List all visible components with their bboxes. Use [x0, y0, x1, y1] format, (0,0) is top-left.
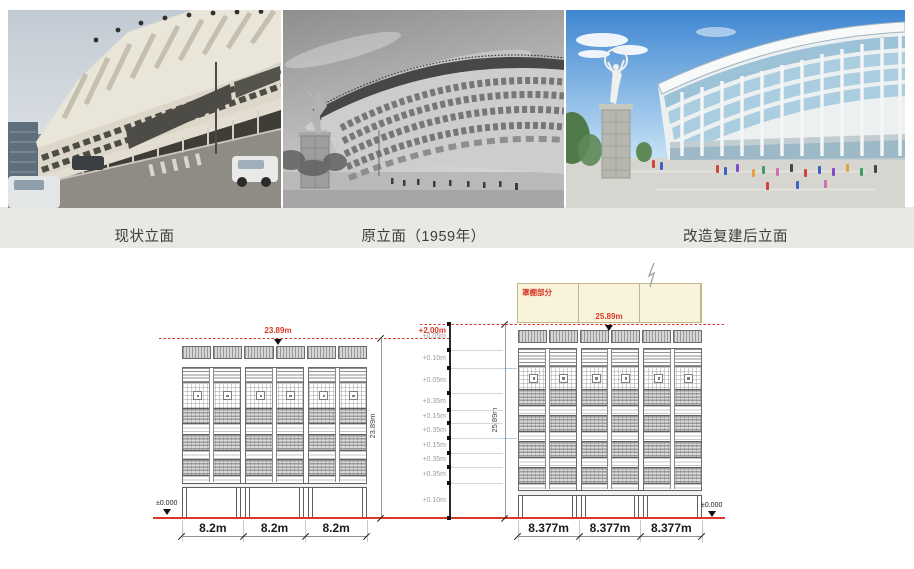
parapet-segment	[213, 346, 242, 359]
level-tick	[447, 322, 451, 326]
extension-line	[367, 520, 368, 542]
facade-bay	[182, 367, 241, 483]
canopy-label: 罩棚部分	[522, 287, 552, 298]
left-peak-triangle-icon	[274, 339, 282, 345]
parapet-segment	[611, 330, 640, 343]
bay-mullion	[209, 368, 214, 482]
level-tick-line	[451, 368, 503, 369]
rosette-ornament-icon	[193, 391, 202, 400]
level-tick-line	[451, 350, 503, 351]
right-peak-marker: 25.89m	[586, 306, 632, 331]
level-tick-line	[451, 467, 503, 468]
rosette-ornament-icon	[223, 391, 232, 400]
level-tick-line	[451, 410, 503, 411]
ground-column	[634, 496, 639, 517]
ground-column	[299, 488, 304, 517]
level-tick-line	[451, 423, 503, 424]
elevation-step-label: +0.15m	[400, 442, 446, 450]
level-tick-line	[451, 483, 503, 484]
elevation-step-label: +0.35m	[400, 427, 446, 435]
bay-mullion	[335, 368, 340, 482]
bay-width-label: 8.377m	[519, 521, 579, 535]
right-height-dim-line	[505, 324, 506, 518]
elevation-drawings: 罩棚部分 23.89m 25.89m +2.00m ±0.000 ±0.000 …	[0, 0, 914, 569]
bay-width-label: 8.377m	[580, 521, 640, 535]
facade-bay	[643, 348, 702, 490]
parapet-segment	[580, 330, 609, 343]
parapet-segment	[518, 330, 547, 343]
right-datum-label: ±0.000	[701, 502, 722, 509]
left-datum-label: ±0.000	[156, 500, 177, 507]
elevation-step-label: +0.15m	[400, 413, 446, 421]
rosette-ornament-icon	[349, 391, 358, 400]
ground-column	[581, 496, 586, 517]
parapet-segment	[244, 346, 273, 359]
elevation-step-label: +0.05m	[400, 333, 446, 341]
right-peak-label: 25.89m	[595, 312, 622, 321]
elevation-step-label: +0.35m	[400, 398, 446, 406]
level-tick	[447, 516, 451, 520]
rosette-ornament-icon	[559, 374, 568, 383]
ground-level-line	[153, 517, 725, 519]
dimension-line	[182, 536, 367, 537]
parapet-band	[518, 330, 702, 343]
ground-floor	[182, 488, 367, 517]
elevation-step-label: +0.10m	[400, 355, 446, 363]
facade-bay	[245, 367, 304, 483]
elevation-step-label: +0.35m	[400, 471, 446, 479]
elevation-step-label: +0.35m	[400, 456, 446, 464]
parapet-segment	[276, 346, 305, 359]
parapet-segment	[642, 330, 671, 343]
rosette-ornament-icon	[684, 374, 693, 383]
left-peak-marker: 23.89m	[255, 320, 301, 345]
right-peak-triangle-icon	[605, 325, 613, 331]
elevation-step-label: +0.10m	[400, 497, 446, 505]
bay-mullion	[607, 349, 612, 489]
bay-width-label: 8.377m	[641, 521, 701, 535]
right-roof-level-line	[420, 324, 725, 325]
level-tick-line	[451, 438, 503, 439]
ground-column	[236, 488, 241, 517]
parapet-segment	[549, 330, 578, 343]
ground-column	[362, 488, 367, 517]
elevation-step-label: +0.05m	[400, 377, 446, 385]
rosette-ornament-icon	[256, 391, 265, 400]
right-datum-marker: ±0.000	[701, 502, 722, 517]
parapet-segment	[307, 346, 336, 359]
extension-line	[702, 520, 703, 542]
parapet-segment	[182, 346, 211, 359]
rosette-ornament-icon	[621, 374, 630, 383]
ground-column	[518, 496, 523, 517]
level-tick-line	[451, 453, 503, 454]
parapet-segment	[338, 346, 367, 359]
parapet-band	[182, 346, 367, 359]
rosette-ornament-icon	[286, 391, 295, 400]
left-datum-triangle-icon	[163, 509, 171, 515]
rosette-ornament-icon	[529, 374, 538, 383]
facade-bay	[518, 348, 577, 490]
bay-mullion	[272, 368, 277, 482]
left-peak-label: 23.89m	[264, 326, 291, 335]
bay-width-label: 8.2m	[306, 521, 366, 535]
canopy-panel	[640, 284, 701, 322]
ground-column	[308, 488, 313, 517]
rosette-ornament-icon	[592, 374, 601, 383]
ground-column	[182, 488, 187, 517]
right-height-dim-label: 25.89m	[490, 399, 500, 441]
bay-width-label: 8.2m	[183, 521, 243, 535]
level-tick-line	[451, 393, 503, 394]
bay-mullion	[670, 349, 675, 489]
left-height-dim-line	[381, 338, 382, 518]
ground-column	[643, 496, 648, 517]
bay-mullion	[545, 349, 550, 489]
dimension-line	[518, 536, 702, 537]
left-height-dim-label: 23.89m	[368, 405, 378, 447]
parapet-segment	[673, 330, 702, 343]
rosette-ornament-icon	[654, 374, 663, 383]
break-mark-icon	[646, 262, 660, 288]
rosette-ornament-icon	[319, 391, 328, 400]
ground-floor	[518, 496, 702, 517]
ground-column	[245, 488, 250, 517]
facade-bay	[308, 367, 367, 483]
slide: 现状立面 原立面（1959年） 改造复建后立面 罩棚部分 23.89m 25.8…	[0, 0, 914, 569]
left-datum-marker: ±0.000	[156, 500, 177, 515]
ground-column	[572, 496, 577, 517]
facade-bay	[581, 348, 640, 490]
right-datum-triangle-icon	[708, 511, 716, 517]
bay-width-label: 8.2m	[245, 521, 305, 535]
